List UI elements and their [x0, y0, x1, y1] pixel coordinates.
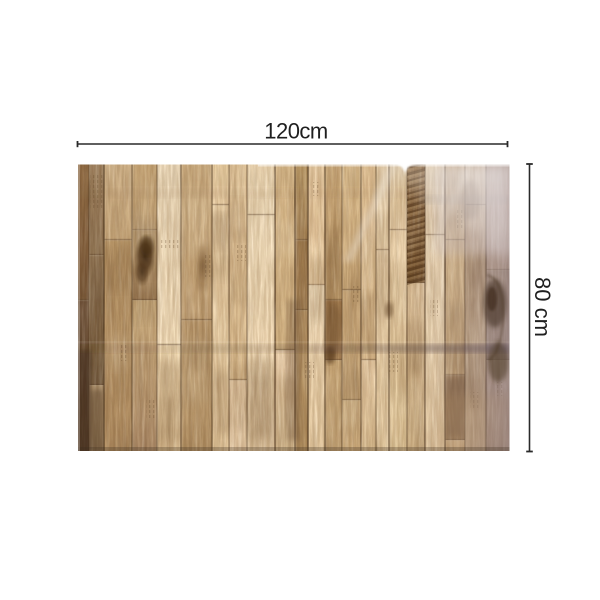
svg-text:120cm: 120cm [264, 119, 328, 144]
svg-text:80 cm: 80 cm [530, 277, 555, 337]
